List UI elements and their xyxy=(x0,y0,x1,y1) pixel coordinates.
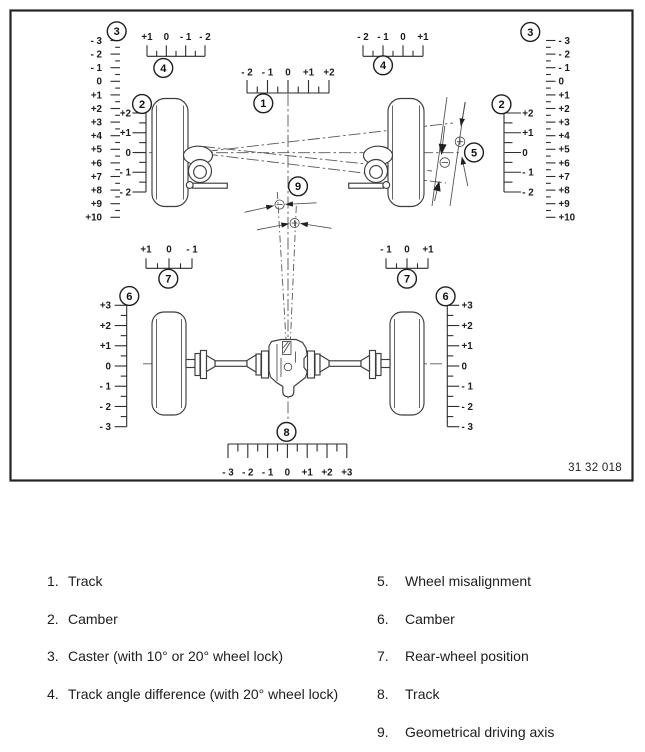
legend-item-label: Rear-wheel position xyxy=(405,648,529,669)
svg-text:- 2: - 2 xyxy=(559,50,571,61)
legend-item-number: 3. xyxy=(47,648,68,669)
svg-text:- 2: - 2 xyxy=(241,68,253,79)
svg-text:- 1: - 1 xyxy=(262,68,274,79)
scale-rear-position-right: - 10+1 xyxy=(380,244,434,268)
svg-text:+9: +9 xyxy=(559,199,571,210)
svg-text:+2: +2 xyxy=(321,468,333,479)
marker-track-angle-left: 4 xyxy=(154,59,173,78)
marker-track-front: 1 xyxy=(254,94,273,113)
alignment-diagram: 31 32 018 +10- 1- 2- 2- 10+1- 2- 10+1+2+… xyxy=(0,0,645,500)
plus-sign-icon xyxy=(290,218,299,227)
svg-text:2: 2 xyxy=(139,99,145,111)
drawing-number: 31 32 018 xyxy=(568,462,622,474)
legend-item-track-angle-difference: 4.Track angle difference (with 20° wheel… xyxy=(47,686,338,707)
svg-text:0: 0 xyxy=(126,148,132,159)
svg-text:+2: +2 xyxy=(559,104,571,115)
svg-text:+1: +1 xyxy=(91,90,103,101)
legend-item-label: Camber xyxy=(405,611,455,632)
svg-text:0: 0 xyxy=(404,244,410,255)
legend-item-number: 1. xyxy=(47,573,68,594)
legend-item-number: 7. xyxy=(377,648,405,669)
svg-text:- 3: - 3 xyxy=(559,36,571,47)
driving-axis-left xyxy=(277,192,286,350)
marker-track-rear: 8 xyxy=(277,423,296,442)
svg-text:+2: +2 xyxy=(100,321,112,332)
differential-housing xyxy=(269,340,307,397)
scale-track-rear: - 3- 2- 10+1+2+3 xyxy=(222,444,353,479)
svg-text:3: 3 xyxy=(114,26,120,38)
svg-text:3: 3 xyxy=(527,27,533,39)
svg-text:- 2: - 2 xyxy=(357,32,369,43)
svg-text:- 2: - 2 xyxy=(462,402,474,413)
svg-text:+9: +9 xyxy=(91,199,103,210)
legend-item-number: 5. xyxy=(377,573,405,594)
legend-column-right: 5.Wheel misalignment6.Camber7.Rear-wheel… xyxy=(377,573,554,752)
svg-text:0: 0 xyxy=(559,77,565,88)
minus-sign-icon xyxy=(440,158,450,168)
marker-caster-right: 3 xyxy=(521,23,540,42)
legend-item-track-rear: 8.Track xyxy=(377,686,554,707)
svg-text:- 1: - 1 xyxy=(186,244,198,255)
svg-text:0: 0 xyxy=(285,468,291,479)
svg-text:- 1: - 1 xyxy=(462,382,474,393)
svg-text:+3: +3 xyxy=(559,118,571,129)
svg-text:+1: +1 xyxy=(462,341,474,352)
legend-item-number: 8. xyxy=(377,686,405,707)
svg-text:+1: +1 xyxy=(422,244,434,255)
svg-text:+6: +6 xyxy=(91,158,103,169)
svg-text:- 1: - 1 xyxy=(377,32,389,43)
svg-text:- 1: - 1 xyxy=(91,63,103,74)
svg-text:+2: +2 xyxy=(323,68,335,79)
svg-text:5: 5 xyxy=(471,147,477,159)
svg-text:+5: +5 xyxy=(91,145,103,156)
svg-text:- 2: - 2 xyxy=(91,50,103,61)
svg-text:0: 0 xyxy=(462,361,468,372)
scale-rear-position-left: +10- 1 xyxy=(140,244,198,268)
svg-text:0: 0 xyxy=(106,361,112,372)
minus-sign-icon xyxy=(275,200,284,209)
marker-rear-position-right: 7 xyxy=(398,269,417,288)
legend-item-label: Camber xyxy=(68,611,118,632)
svg-text:- 3: - 3 xyxy=(222,468,234,479)
svg-text:- 1: - 1 xyxy=(100,382,112,393)
svg-text:6: 6 xyxy=(126,291,132,303)
marker-track-angle-right: 4 xyxy=(374,56,393,75)
svg-text:- 3: - 3 xyxy=(91,36,103,47)
svg-text:+10: +10 xyxy=(559,213,576,224)
svg-text:- 2: - 2 xyxy=(242,468,254,479)
svg-text:0: 0 xyxy=(164,32,170,43)
scale-caster-left: - 3- 2- 10+1+2+3+4+5+6+7+8+9+10 xyxy=(85,36,120,224)
legend-item-number: 4. xyxy=(47,686,68,707)
marker-camber-front-left: 2 xyxy=(133,95,152,114)
svg-text:7: 7 xyxy=(404,274,410,286)
legend-item-label: Track angle difference (with 20° wheel l… xyxy=(68,686,338,707)
svg-text:+1: +1 xyxy=(559,90,571,101)
legend-item-geometrical-driving-axis: 9.Geometrical driving axis xyxy=(377,724,554,745)
svg-text:+1: +1 xyxy=(417,32,429,43)
marker-rear-position-left: 7 xyxy=(159,269,178,288)
scale-camber-rear-left: +3+2+10- 1- 2- 3 xyxy=(100,301,127,433)
svg-text:- 1: - 1 xyxy=(380,244,392,255)
legend-item-number: 2. xyxy=(47,611,68,632)
svg-text:0: 0 xyxy=(285,68,291,79)
svg-text:+1: +1 xyxy=(100,341,112,352)
svg-text:9: 9 xyxy=(295,181,301,193)
svg-text:- 1: - 1 xyxy=(262,468,274,479)
svg-text:- 2: - 2 xyxy=(100,402,112,413)
svg-text:+1: +1 xyxy=(140,244,152,255)
svg-text:- 1: - 1 xyxy=(559,63,571,74)
svg-text:+1: +1 xyxy=(141,32,153,43)
legend-item-wheel-misalignment: 5.Wheel misalignment xyxy=(377,573,554,594)
scale-camber-front-left: +2+10- 1- 2 xyxy=(120,108,146,198)
front-left-wheel xyxy=(152,99,188,207)
svg-text:- 2: - 2 xyxy=(120,187,132,198)
scale-track-front: - 2- 10+1+2 xyxy=(241,68,335,94)
legend-item-caster: 3.Caster (with 10° or 20° wheel lock) xyxy=(47,648,338,669)
legend-item-label: Geometrical driving axis xyxy=(405,724,554,745)
svg-text:+10: +10 xyxy=(85,213,102,224)
marker-camber-front-right: 2 xyxy=(492,95,511,114)
wheel-misalignment-indicator xyxy=(432,97,468,206)
svg-text:+4: +4 xyxy=(91,131,103,142)
svg-text:7: 7 xyxy=(165,274,171,286)
svg-text:+3: +3 xyxy=(341,468,353,479)
svg-text:+7: +7 xyxy=(91,172,103,183)
legend-item-camber-front: 2.Camber xyxy=(47,611,338,632)
svg-text:+3: +3 xyxy=(91,118,103,129)
svg-text:+3: +3 xyxy=(462,301,474,312)
scale-track-angle-right: - 2- 10+1 xyxy=(357,32,429,56)
scale-camber-front-right: +2+10- 1- 2 xyxy=(504,108,534,198)
legend-item-label: Caster (with 10° or 20° wheel lock) xyxy=(68,648,283,669)
svg-text:- 2: - 2 xyxy=(199,32,211,43)
legend-item-number: 9. xyxy=(377,724,405,745)
svg-text:+6: +6 xyxy=(559,158,571,169)
svg-text:+7: +7 xyxy=(559,172,571,183)
svg-text:+2: +2 xyxy=(120,108,132,119)
legend-item-rear-wheel-position: 7.Rear-wheel position xyxy=(377,648,554,669)
svg-text:6: 6 xyxy=(443,291,449,303)
svg-text:+2: +2 xyxy=(462,321,474,332)
marker-geometrical-driving-axis: 9 xyxy=(289,177,308,196)
scale-track-angle-left: +10- 1- 2 xyxy=(141,32,211,56)
svg-text:- 3: - 3 xyxy=(100,422,112,433)
svg-text:+8: +8 xyxy=(559,186,571,197)
marker-wheel-misalignment: 5 xyxy=(465,143,484,162)
legend-item-camber-rear: 6.Camber xyxy=(377,611,554,632)
svg-text:+1: +1 xyxy=(302,468,314,479)
svg-text:+2: +2 xyxy=(91,104,103,115)
marker-camber-rear-left: 6 xyxy=(120,287,139,306)
wheel-alignment-page: 31 32 018 +10- 1- 2- 2- 10+1- 2- 10+1+2+… xyxy=(0,0,645,752)
svg-text:0: 0 xyxy=(522,148,528,159)
svg-text:2: 2 xyxy=(498,99,504,111)
svg-text:+1: +1 xyxy=(303,68,315,79)
svg-text:8: 8 xyxy=(283,427,289,439)
svg-text:0: 0 xyxy=(97,77,103,88)
svg-text:+1: +1 xyxy=(522,128,534,139)
svg-text:- 2: - 2 xyxy=(522,187,534,198)
svg-text:0: 0 xyxy=(166,244,172,255)
svg-text:4: 4 xyxy=(380,60,387,72)
svg-text:- 3: - 3 xyxy=(462,422,474,433)
legend-item-track-front: 1.Track xyxy=(47,573,338,594)
svg-text:1: 1 xyxy=(260,98,266,110)
legend-item-label: Wheel misalignment xyxy=(405,573,531,594)
svg-text:+4: +4 xyxy=(559,131,571,142)
svg-text:- 1: - 1 xyxy=(120,168,132,179)
scale-caster-right: - 3- 2- 10+1+2+3+4+5+6+7+8+9+10 xyxy=(546,36,576,224)
svg-text:+5: +5 xyxy=(559,145,571,156)
marker-camber-rear-right: 6 xyxy=(436,287,455,306)
marker-caster-left: 3 xyxy=(107,22,126,41)
svg-text:+1: +1 xyxy=(120,128,132,139)
legend-column-left: 1.Track2.Camber3.Caster (with 10° or 20°… xyxy=(47,573,338,724)
front-right-wheel xyxy=(388,99,424,207)
svg-text:4: 4 xyxy=(160,63,167,75)
legend-item-label: Track xyxy=(68,573,102,594)
svg-text:+3: +3 xyxy=(100,301,112,312)
scale-camber-rear-right: +3+2+10- 1- 2- 3 xyxy=(447,301,473,433)
rear-right-wheel xyxy=(390,312,424,415)
legend-item-number: 6. xyxy=(377,611,405,632)
svg-text:- 1: - 1 xyxy=(180,32,192,43)
svg-text:0: 0 xyxy=(400,32,406,43)
svg-text:+2: +2 xyxy=(522,108,534,119)
legend-item-label: Track xyxy=(405,686,439,707)
svg-text:- 1: - 1 xyxy=(522,168,534,179)
svg-text:+8: +8 xyxy=(91,186,103,197)
rear-left-wheel xyxy=(152,312,186,415)
